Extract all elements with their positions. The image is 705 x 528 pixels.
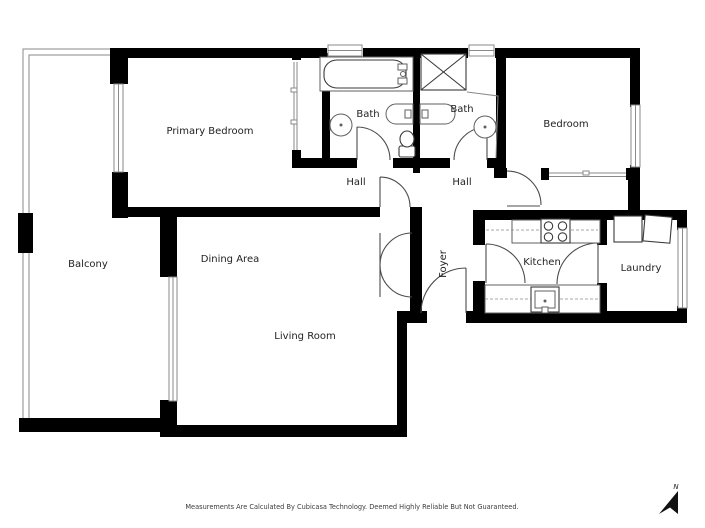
wall-segment xyxy=(292,48,301,60)
faucet-icon xyxy=(405,110,411,118)
wall-segment xyxy=(677,306,687,323)
wall-segment xyxy=(293,158,357,168)
room-label-foyer: Foyer xyxy=(438,249,449,278)
wall-segment xyxy=(473,281,485,323)
room-label-kitchen: Kitchen xyxy=(523,257,561,268)
room-label-balcony: Balcony xyxy=(68,259,108,270)
floor-plan-page: Primary Bedroom Bath Bath Bedroom Hall H… xyxy=(0,0,705,528)
kitchen-sink-icon xyxy=(531,287,559,313)
railing-post xyxy=(18,213,33,253)
balcony-railing xyxy=(18,49,112,418)
wall-segment xyxy=(393,158,420,168)
wall-segment xyxy=(110,48,128,84)
wall-segment xyxy=(473,210,485,245)
wall-segment xyxy=(160,425,407,437)
wall-segment xyxy=(410,230,422,323)
bathtub-icon xyxy=(324,60,406,88)
wall-segment xyxy=(541,168,549,180)
door-jamb xyxy=(291,88,297,92)
wall-segment xyxy=(410,207,422,232)
north-arrow-icon: N xyxy=(659,483,679,514)
room-label-bath-right: Bath xyxy=(450,104,473,115)
window xyxy=(169,277,177,401)
north-arrow-shape xyxy=(659,491,678,514)
faucet-icon xyxy=(398,64,407,70)
drain-icon xyxy=(401,72,406,77)
door-arc xyxy=(557,243,598,284)
sink-icon xyxy=(474,116,496,138)
wall-segment xyxy=(628,178,640,220)
faucet-icon xyxy=(422,110,428,118)
wall-segment xyxy=(128,207,380,217)
wall-segment xyxy=(160,217,177,277)
wall-segment xyxy=(420,158,450,168)
wall-segment xyxy=(397,311,407,437)
wall-segment xyxy=(630,48,640,107)
shower-icon xyxy=(421,54,466,90)
window xyxy=(114,84,123,172)
window xyxy=(328,45,362,56)
door-arc xyxy=(357,127,390,160)
wall-segment xyxy=(487,158,500,168)
floor-plan-drawing: Primary Bedroom Bath Bath Bedroom Hall H… xyxy=(0,0,705,528)
room-label-hall-right: Hall xyxy=(452,177,471,188)
room-label-bedroom: Bedroom xyxy=(543,119,588,130)
window xyxy=(469,45,494,56)
room-label-bath-left: Bath xyxy=(356,109,379,120)
room-label-dining-area: Dining Area xyxy=(201,254,259,265)
door-arc xyxy=(380,177,410,207)
wall-segment xyxy=(495,48,640,58)
toilet-icon xyxy=(399,131,415,157)
disclaimer-text: Measurements Are Calculated By Cubicasa … xyxy=(185,503,518,511)
compass-north-label: N xyxy=(673,483,679,491)
wall-segment xyxy=(19,418,165,432)
door-jamb xyxy=(583,171,589,175)
room-label-hall-left: Hall xyxy=(346,177,365,188)
room-label-laundry: Laundry xyxy=(621,263,662,274)
dryer-icon xyxy=(643,215,672,243)
closet-double-door-arcs xyxy=(380,233,412,297)
stove-icon xyxy=(541,219,570,243)
door-arc xyxy=(507,171,541,206)
washer-icon xyxy=(614,216,642,242)
room-label-living-room: Living Room xyxy=(274,331,335,342)
sink-icon xyxy=(330,114,352,136)
door-jamb xyxy=(291,120,297,124)
door-arc xyxy=(486,244,525,283)
room-label-primary-bedroom: Primary Bedroom xyxy=(166,126,253,137)
wall-segment xyxy=(494,168,507,178)
window xyxy=(678,228,687,308)
faucet-icon xyxy=(398,78,407,84)
window xyxy=(631,105,640,167)
